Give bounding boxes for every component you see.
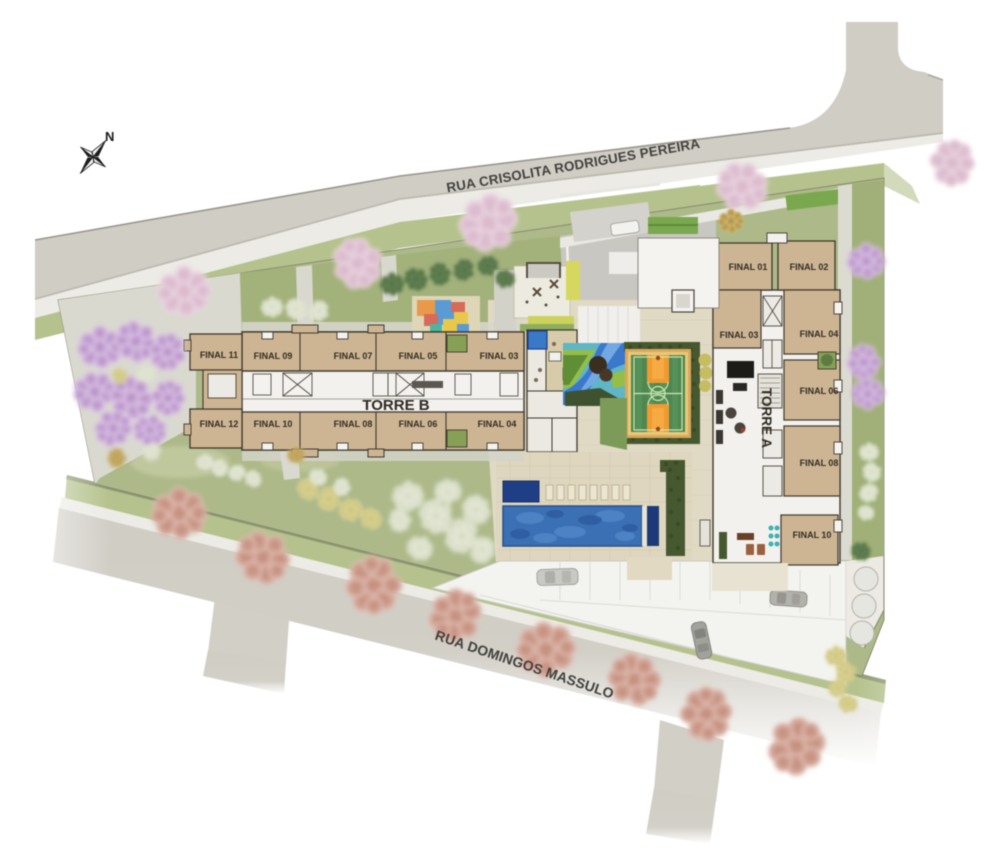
svg-text:FINAL 07: FINAL 07: [334, 351, 373, 361]
svg-text:FINAL 09: FINAL 09: [254, 351, 293, 361]
svg-text:TORRE A: TORRE A: [759, 388, 774, 448]
svg-text:FINAL 06: FINAL 06: [399, 419, 438, 429]
svg-text:FINAL 05: FINAL 05: [399, 351, 438, 361]
svg-text:FINAL 12: FINAL 12: [200, 419, 239, 429]
svg-text:FINAL 06: FINAL 06: [800, 386, 839, 396]
svg-text:N: N: [105, 129, 114, 144]
svg-text:FINAL 10: FINAL 10: [793, 530, 832, 540]
svg-text:FINAL 08: FINAL 08: [334, 419, 373, 429]
svg-text:FINAL 04: FINAL 04: [478, 419, 517, 429]
svg-text:FINAL 04: FINAL 04: [800, 329, 839, 339]
svg-text:FINAL 03: FINAL 03: [480, 351, 519, 361]
svg-text:FINAL 10: FINAL 10: [254, 419, 293, 429]
svg-text:TORRE B: TORRE B: [362, 397, 429, 414]
svg-text:FINAL 02: FINAL 02: [790, 262, 829, 272]
svg-text:FINAL 08: FINAL 08: [800, 458, 839, 468]
svg-text:FINAL 01: FINAL 01: [729, 262, 768, 272]
svg-text:FINAL 03: FINAL 03: [720, 330, 759, 340]
svg-text:FINAL 11: FINAL 11: [200, 350, 238, 360]
